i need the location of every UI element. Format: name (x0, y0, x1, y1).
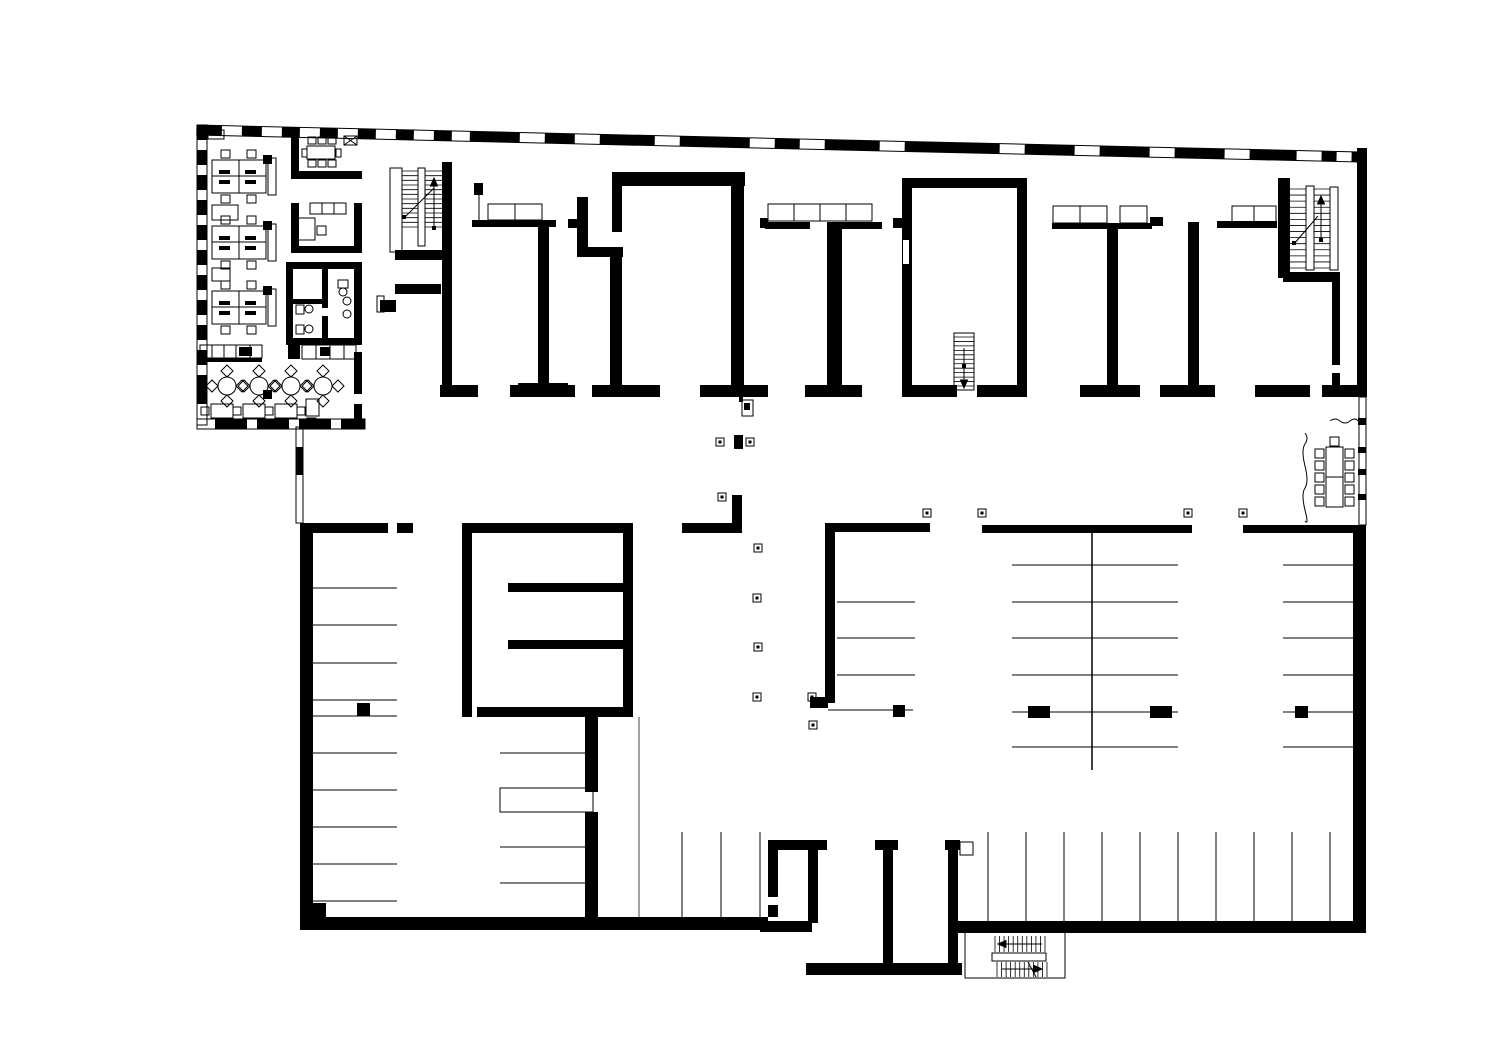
courtyard-and-columns (682, 419, 1358, 729)
parking-garage (300, 523, 1366, 975)
office-walls (286, 133, 1360, 421)
floor-plan-drawing (0, 0, 1500, 1060)
top-facade-window-band (197, 125, 1365, 162)
floor-plan-page (0, 0, 1500, 1060)
right-facade (1357, 148, 1367, 525)
